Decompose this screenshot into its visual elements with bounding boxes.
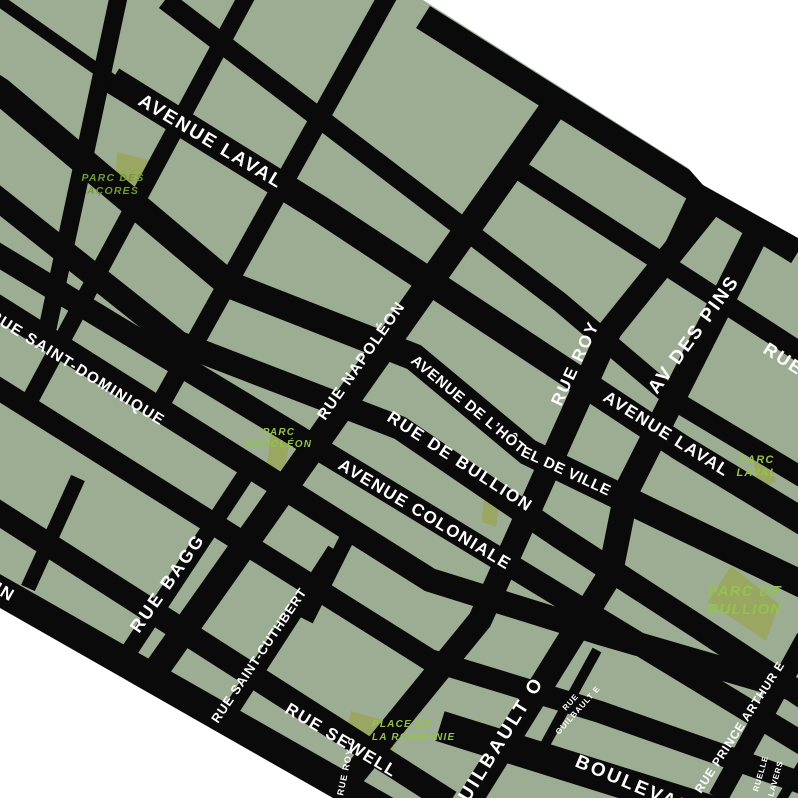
svg-text:BULLION: BULLION <box>707 601 782 618</box>
svg-text:PARC: PARC <box>739 454 774 466</box>
svg-text:PARC DES: PARC DES <box>81 172 144 184</box>
svg-text:LA ROUMANIE: LA ROUMANIE <box>372 732 455 743</box>
svg-text:LAVAL: LAVAL <box>736 467 777 479</box>
svg-text:PARC: PARC <box>263 427 295 438</box>
svg-text:NAPOLÉON: NAPOLÉON <box>246 437 312 450</box>
svg-text:PARC DE: PARC DE <box>708 583 783 600</box>
svg-text:PLACE DE: PLACE DE <box>372 719 432 730</box>
svg-text:AÇORES: AÇORES <box>86 185 139 197</box>
